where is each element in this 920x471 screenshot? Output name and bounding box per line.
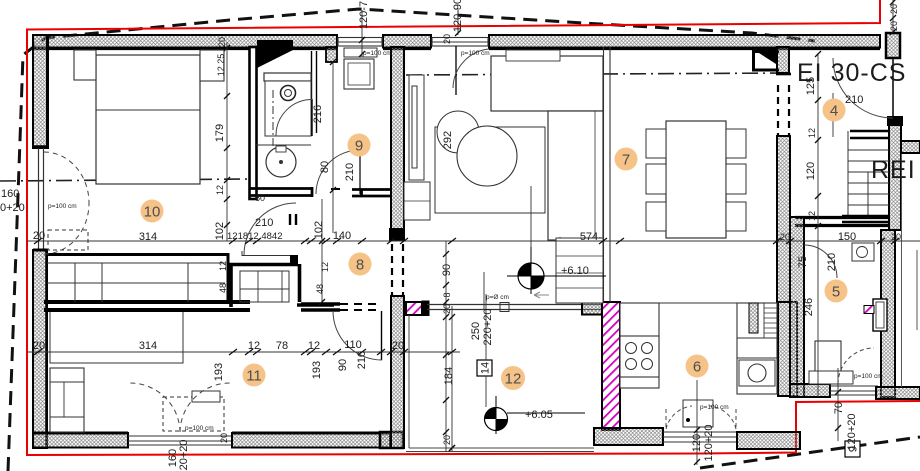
svg-text:8: 8 xyxy=(442,292,452,297)
svg-text:120-90: 120-90 xyxy=(452,0,464,32)
svg-text:210: 210 xyxy=(255,217,273,229)
svg-text:20: 20 xyxy=(33,230,45,242)
svg-text:12: 12 xyxy=(215,185,225,195)
svg-text:120+20: 120+20 xyxy=(703,424,715,461)
svg-text:p=100 cm: p=100 cm xyxy=(700,404,729,411)
svg-text:20: 20 xyxy=(889,4,899,14)
svg-text:80: 80 xyxy=(319,161,331,173)
svg-text:12: 12 xyxy=(308,340,320,352)
svg-text:125: 125 xyxy=(805,77,817,95)
svg-text:90: 90 xyxy=(441,264,453,276)
svg-text:102: 102 xyxy=(214,222,226,240)
svg-text:78: 78 xyxy=(276,340,288,352)
svg-text:14: 14 xyxy=(480,362,492,374)
svg-text:p=100 cm: p=100 cm xyxy=(185,425,214,432)
svg-text:12: 12 xyxy=(248,340,260,352)
svg-text:75: 75 xyxy=(797,256,809,268)
svg-text:314: 314 xyxy=(139,340,157,352)
svg-text:12: 12 xyxy=(218,261,228,271)
svg-text:20: 20 xyxy=(891,232,901,242)
svg-text:0+20: 0+20 xyxy=(0,202,25,214)
svg-text:+6.10: +6.10 xyxy=(561,265,589,277)
svg-text:60: 60 xyxy=(255,193,265,203)
svg-text:210: 210 xyxy=(356,351,368,369)
svg-text:p=Ø cm: p=Ø cm xyxy=(486,294,509,301)
svg-text:120-7: 120-7 xyxy=(358,1,370,29)
svg-text:REI: REI xyxy=(871,156,916,184)
svg-text:110: 110 xyxy=(344,339,362,351)
svg-text:140: 140 xyxy=(333,230,351,242)
svg-text:250: 250 xyxy=(470,322,482,340)
svg-text:7: 7 xyxy=(622,152,630,169)
svg-text:193: 193 xyxy=(213,363,225,381)
svg-text:4: 4 xyxy=(830,103,838,120)
svg-text:210: 210 xyxy=(344,163,356,181)
svg-text:193: 193 xyxy=(311,361,323,379)
svg-text:70: 70 xyxy=(833,402,845,414)
svg-text:12: 12 xyxy=(807,211,817,221)
svg-text:12: 12 xyxy=(505,371,522,388)
svg-text:216: 216 xyxy=(312,105,324,123)
svg-text:20: 20 xyxy=(442,304,452,314)
svg-text:48: 48 xyxy=(315,284,325,294)
svg-text:+6.05: +6.05 xyxy=(525,409,553,421)
svg-text:6: 6 xyxy=(693,359,701,376)
svg-text:20: 20 xyxy=(780,232,790,242)
svg-text:12.25: 12.25 xyxy=(216,54,226,77)
svg-text:20: 20 xyxy=(33,340,45,352)
svg-text:12: 12 xyxy=(320,262,330,272)
svg-text:11: 11 xyxy=(246,368,262,385)
svg-text:246: 246 xyxy=(803,298,815,316)
svg-text:20: 20 xyxy=(889,21,899,31)
svg-text:120+20: 120+20 xyxy=(846,413,858,450)
svg-text:p=100 cm: p=100 cm xyxy=(461,50,490,57)
svg-text:121812 4842: 121812 4842 xyxy=(227,231,282,242)
svg-text:8: 8 xyxy=(356,257,364,274)
svg-text:120: 120 xyxy=(691,434,703,452)
svg-text:160: 160 xyxy=(1,188,19,200)
svg-text:p=100 cm: p=100 cm xyxy=(363,50,392,57)
svg-text:12: 12 xyxy=(807,128,817,138)
svg-text:p=100 cm: p=100 cm xyxy=(48,203,77,210)
svg-text:150: 150 xyxy=(838,231,856,243)
svg-text:10: 10 xyxy=(144,204,161,221)
svg-text:314: 314 xyxy=(139,231,157,243)
svg-text:20: 20 xyxy=(442,435,452,445)
svg-text:20: 20 xyxy=(442,34,452,44)
svg-text:p=100 cm: p=100 cm xyxy=(854,373,883,380)
svg-text:20: 20 xyxy=(392,340,404,352)
svg-text:9: 9 xyxy=(355,138,363,155)
svg-text:184: 184 xyxy=(443,367,455,385)
svg-text:102: 102 xyxy=(313,221,325,239)
svg-text:292: 292 xyxy=(442,131,454,149)
svg-text:210: 210 xyxy=(845,94,863,106)
svg-text:120: 120 xyxy=(805,162,817,180)
svg-text:90: 90 xyxy=(337,359,349,371)
svg-text:48: 48 xyxy=(218,283,228,293)
svg-text:220+20: 220+20 xyxy=(482,308,494,345)
svg-text:210: 210 xyxy=(826,253,838,271)
svg-text:5: 5 xyxy=(832,284,840,301)
svg-text:20: 20 xyxy=(217,37,227,47)
svg-text:20: 20 xyxy=(219,433,229,443)
svg-text:179: 179 xyxy=(214,124,226,142)
svg-text:574: 574 xyxy=(580,231,598,243)
svg-text:120+20: 120+20 xyxy=(178,439,190,471)
